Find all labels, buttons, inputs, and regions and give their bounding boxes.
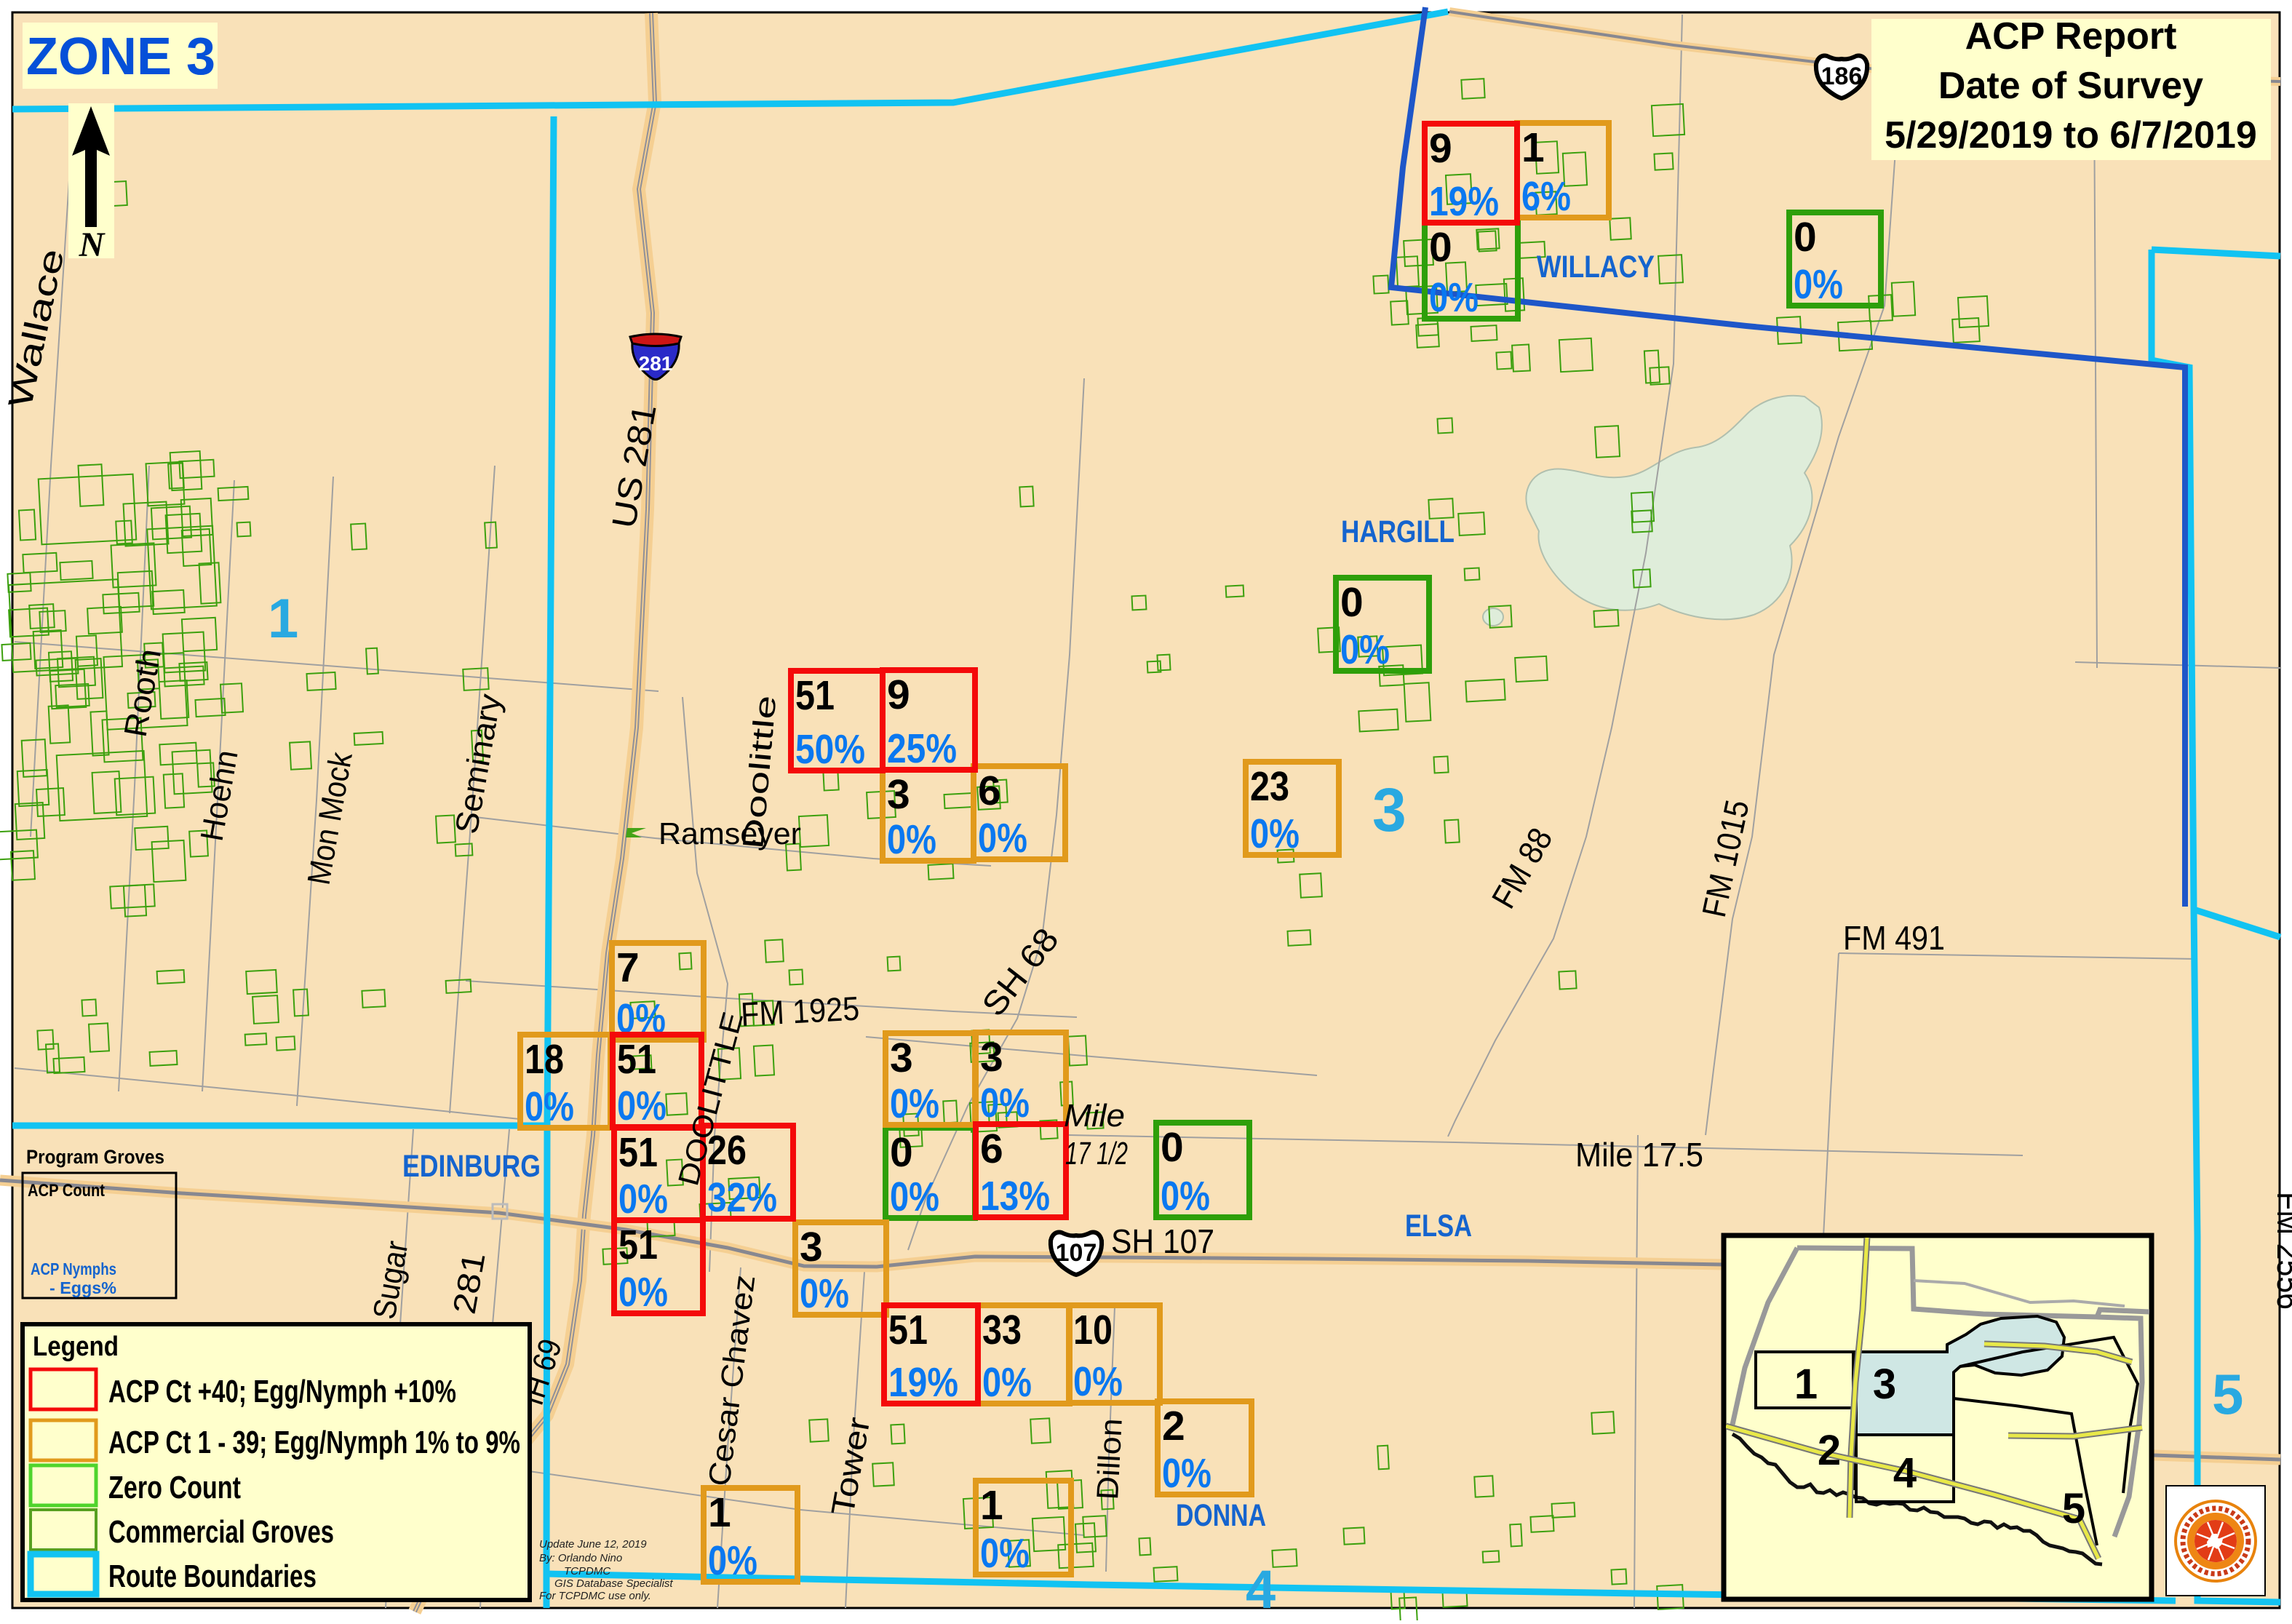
svg-text:ACP Ct 1 - 39; Egg/Nymph 1% to: ACP Ct 1 - 39; Egg/Nymph 1% to 9% bbox=[108, 1425, 520, 1460]
svg-text:1: 1 bbox=[708, 1489, 731, 1536]
svg-text:0%: 0% bbox=[708, 1537, 757, 1584]
svg-text:0%: 0% bbox=[890, 1080, 939, 1127]
svg-text:0%: 0% bbox=[890, 1174, 939, 1220]
svg-text:51: 51 bbox=[618, 1222, 658, 1268]
svg-text:DONNA: DONNA bbox=[1176, 1498, 1266, 1533]
svg-text:18: 18 bbox=[525, 1036, 564, 1083]
svg-text:5/29/2019 to 6/7/2019: 5/29/2019 to 6/7/2019 bbox=[1885, 114, 2257, 156]
svg-text:32%: 32% bbox=[707, 1174, 777, 1221]
svg-text:Mile 17.5: Mile 17.5 bbox=[1575, 1136, 1703, 1174]
svg-text:10: 10 bbox=[1073, 1307, 1113, 1353]
svg-text:9: 9 bbox=[1429, 125, 1452, 172]
svg-text:23: 23 bbox=[1250, 763, 1289, 810]
svg-text:Commercial Groves: Commercial Groves bbox=[108, 1514, 334, 1550]
svg-text:Date of Survey: Date of Survey bbox=[1938, 65, 2203, 107]
svg-text:1: 1 bbox=[1794, 1361, 1818, 1408]
svg-text:For TCPDMC use only.: For TCPDMC use only. bbox=[539, 1590, 651, 1602]
svg-text:TCPDMC: TCPDMC bbox=[564, 1565, 610, 1577]
svg-text:3: 3 bbox=[1873, 1361, 1896, 1408]
svg-text:FM 1925: FM 1925 bbox=[740, 990, 860, 1033]
svg-text:0: 0 bbox=[1340, 579, 1364, 626]
svg-text:0%: 0% bbox=[617, 1083, 666, 1129]
svg-text:0%: 0% bbox=[525, 1083, 574, 1130]
svg-text:0%: 0% bbox=[982, 1359, 1032, 1406]
svg-text:17 1/2: 17 1/2 bbox=[1065, 1136, 1128, 1171]
svg-text:281: 281 bbox=[639, 352, 673, 375]
svg-text:4: 4 bbox=[1246, 1559, 1276, 1620]
svg-text:0: 0 bbox=[890, 1129, 913, 1176]
svg-text:107: 107 bbox=[1056, 1239, 1097, 1267]
svg-text:Zero Count: Zero Count bbox=[108, 1470, 241, 1505]
svg-text:0%: 0% bbox=[1429, 274, 1479, 321]
svg-text:0: 0 bbox=[1794, 214, 1817, 260]
svg-text:3: 3 bbox=[890, 1035, 913, 1081]
svg-text:N: N bbox=[79, 226, 106, 264]
svg-text:By: Orlando Nino: By: Orlando Nino bbox=[539, 1552, 622, 1564]
svg-text:6%: 6% bbox=[1521, 173, 1571, 220]
svg-text:0%: 0% bbox=[800, 1270, 849, 1317]
svg-text:Mile: Mile bbox=[1064, 1098, 1125, 1134]
svg-text:3: 3 bbox=[887, 771, 910, 818]
svg-text:HARGILL: HARGILL bbox=[1341, 514, 1455, 549]
svg-text:0%: 0% bbox=[1340, 626, 1390, 673]
svg-text:5: 5 bbox=[2062, 1485, 2085, 1532]
svg-text:5: 5 bbox=[2212, 1362, 2243, 1426]
svg-text:13%: 13% bbox=[980, 1173, 1050, 1219]
svg-text:1: 1 bbox=[980, 1482, 1003, 1529]
svg-text:3: 3 bbox=[980, 1034, 1003, 1080]
svg-text:GIS Database Specialist: GIS Database Specialist bbox=[554, 1577, 673, 1590]
svg-text:0%: 0% bbox=[978, 815, 1027, 861]
svg-text:2: 2 bbox=[1162, 1403, 1185, 1449]
svg-text:6: 6 bbox=[978, 768, 1001, 814]
svg-text:0: 0 bbox=[1429, 224, 1452, 271]
svg-text:Program Groves: Program Groves bbox=[26, 1146, 164, 1168]
svg-text:ELSA: ELSA bbox=[1405, 1209, 1472, 1243]
svg-text:6: 6 bbox=[980, 1126, 1003, 1172]
svg-text:51: 51 bbox=[618, 1129, 658, 1176]
svg-text:ACP Nymphs: ACP Nymphs bbox=[31, 1259, 116, 1278]
svg-text:ACP Report: ACP Report bbox=[1965, 15, 2177, 57]
svg-text:9: 9 bbox=[887, 672, 910, 718]
svg-text:50%: 50% bbox=[795, 726, 865, 773]
svg-text:51: 51 bbox=[888, 1307, 928, 1353]
svg-text:0%: 0% bbox=[887, 816, 936, 863]
svg-text:19%: 19% bbox=[1429, 178, 1499, 225]
svg-text:WILLACY: WILLACY bbox=[1537, 250, 1655, 284]
svg-text:FM 2556: FM 2556 bbox=[2270, 1192, 2292, 1310]
svg-text:ACP Count: ACP Count bbox=[28, 1181, 105, 1201]
svg-text:0%: 0% bbox=[1073, 1358, 1123, 1405]
svg-text:0%: 0% bbox=[1794, 261, 1843, 308]
svg-text:25%: 25% bbox=[887, 725, 957, 772]
svg-text:7: 7 bbox=[616, 944, 640, 991]
svg-text:0%: 0% bbox=[618, 1176, 668, 1222]
svg-text:ZONE 3: ZONE 3 bbox=[26, 28, 215, 86]
svg-text:3: 3 bbox=[1372, 776, 1406, 844]
svg-text:SH 107: SH 107 bbox=[1111, 1222, 1214, 1260]
svg-text:19%: 19% bbox=[888, 1359, 958, 1406]
svg-text:0%: 0% bbox=[1162, 1450, 1211, 1497]
svg-text:Route Boundaries: Route Boundaries bbox=[108, 1559, 317, 1594]
svg-text:33: 33 bbox=[982, 1307, 1022, 1353]
svg-text:0: 0 bbox=[1161, 1124, 1184, 1171]
svg-text:1: 1 bbox=[1521, 124, 1545, 171]
svg-text:0%: 0% bbox=[980, 1080, 1030, 1126]
svg-text:3: 3 bbox=[800, 1224, 823, 1270]
svg-text:EDINBURG: EDINBURG bbox=[402, 1149, 541, 1184]
svg-text:ACP Ct +40; Egg/Nymph +10%: ACP Ct +40; Egg/Nymph +10% bbox=[108, 1374, 456, 1409]
svg-text:Ramseyer: Ramseyer bbox=[658, 816, 801, 851]
svg-text:0%: 0% bbox=[1161, 1173, 1210, 1219]
svg-text:0%: 0% bbox=[618, 1269, 668, 1315]
svg-text:4: 4 bbox=[1893, 1449, 1917, 1497]
svg-text:0%: 0% bbox=[980, 1530, 1030, 1577]
svg-text:186: 186 bbox=[1821, 63, 1863, 90]
svg-text:Dillon: Dillon bbox=[1090, 1417, 1129, 1500]
svg-text:2: 2 bbox=[1818, 1427, 1841, 1474]
svg-text:0%: 0% bbox=[1250, 811, 1300, 857]
svg-text:Update June 12, 2019: Update June 12, 2019 bbox=[539, 1538, 647, 1551]
svg-text:FM 491: FM 491 bbox=[1843, 919, 1945, 957]
svg-text:51: 51 bbox=[617, 1036, 656, 1083]
svg-text:- Eggs%: - Eggs% bbox=[49, 1278, 116, 1297]
svg-text:51: 51 bbox=[795, 672, 835, 719]
svg-text:Legend: Legend bbox=[33, 1332, 119, 1362]
svg-text:1: 1 bbox=[268, 588, 298, 650]
